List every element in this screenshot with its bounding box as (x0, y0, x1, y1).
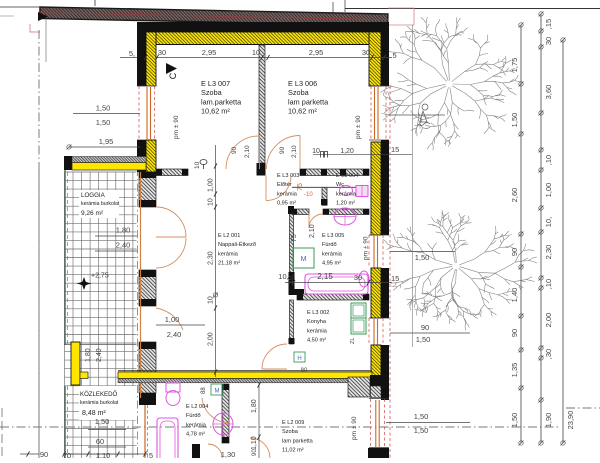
svg-text:11,02 m²: 11,02 m² (282, 448, 304, 454)
svg-text:kerámia burkolat: kerámia burkolat (80, 400, 119, 406)
svg-text:kerámia: kerámia (186, 422, 207, 428)
svg-text:1,50: 1,50 (414, 412, 429, 421)
svg-text:1,50: 1,50 (415, 253, 430, 262)
svg-text:75: 75 (291, 234, 298, 242)
svg-text:pm ± 90: pm ± 90 (351, 416, 358, 440)
svg-text:2,40: 2,40 (116, 241, 131, 250)
svg-text:ZL: ZL (350, 338, 356, 344)
svg-text:4,95 m²: 4,95 m² (322, 261, 341, 267)
svg-text:21,18 m²: 21,18 m² (218, 261, 240, 267)
svg-text:90: 90 (231, 146, 238, 154)
svg-text:10: 10 (252, 48, 260, 57)
svg-text:Konyha: Konyha (307, 319, 327, 325)
svg-text:+2,75: +2,75 (91, 273, 109, 280)
svg-text:M: M (215, 389, 220, 395)
svg-text:1,30: 1,30 (221, 450, 236, 458)
svg-text:1,50: 1,50 (510, 113, 519, 128)
svg-text:2,00: 2,00 (208, 332, 215, 346)
svg-text:1,20: 1,20 (340, 148, 354, 155)
svg-text:23,90: 23,90 (566, 411, 575, 430)
svg-text:,10: ,10 (544, 155, 553, 165)
svg-text:Wc: Wc (336, 182, 344, 188)
svg-text:1,50: 1,50 (96, 104, 111, 113)
svg-text:10,62 m²: 10,62 m² (201, 107, 230, 116)
svg-text:1,50: 1,50 (414, 426, 429, 435)
svg-text:Szoba: Szoba (288, 88, 310, 97)
svg-text:C: C (168, 72, 178, 79)
svg-text:70: 70 (63, 451, 71, 458)
svg-text:2,30: 2,30 (208, 251, 215, 265)
svg-text:Fürdő: Fürdő (186, 413, 201, 419)
svg-text:E L2 009: E L2 009 (282, 420, 304, 426)
svg-text:Szoba: Szoba (282, 429, 299, 435)
svg-text:9,26 m²: 9,26 m² (81, 210, 104, 217)
svg-text:1,35: 1,35 (510, 363, 519, 378)
svg-text:Nappali-Étkező: Nappali-Étkező (218, 241, 256, 248)
svg-text:10: 10 (194, 161, 201, 169)
svg-text:E L3 004: E L3 004 (336, 173, 358, 179)
svg-text:1,40: 1,40 (510, 288, 519, 303)
svg-text:pm ± 90: pm ± 90 (363, 236, 370, 260)
svg-text:LOGGIA: LOGGIA (81, 192, 106, 199)
svg-text:4,50 m²: 4,50 m² (307, 338, 326, 344)
svg-text:90: 90 (279, 146, 286, 154)
svg-text:E L3 002: E L3 002 (307, 310, 329, 316)
svg-text:2,10: 2,10 (309, 224, 316, 238)
svg-text:5,: 5, (129, 49, 135, 58)
svg-text:E L3 003: E L3 003 (277, 173, 299, 179)
svg-text:90: 90 (40, 450, 48, 458)
svg-text:kerámia: kerámia (277, 191, 298, 197)
svg-text:,30: ,30 (544, 349, 553, 359)
svg-text:2,60: 2,60 (510, 188, 519, 203)
svg-text:pm ± 90: pm ± 90 (173, 115, 180, 139)
svg-text:1,50: 1,50 (95, 417, 110, 426)
svg-text:80: 80 (301, 368, 308, 374)
svg-text:Előtér: Előtér (277, 182, 292, 188)
svg-text:E L3 007: E L3 007 (201, 79, 230, 88)
svg-text:lam.parketta: lam.parketta (201, 97, 242, 106)
svg-text:10: 10 (312, 148, 320, 155)
svg-text:10,: 10, (278, 272, 288, 281)
svg-text:5: 5 (149, 451, 153, 458)
svg-text:2,95: 2,95 (309, 48, 324, 57)
svg-text:1,50: 1,50 (416, 335, 431, 344)
svg-text:15: 15 (391, 274, 399, 283)
svg-text:1,00: 1,00 (165, 315, 180, 324)
svg-text:4,78 m²: 4,78 m² (186, 432, 205, 438)
svg-text:2,10: 2,10 (244, 145, 251, 158)
svg-text:1,10: 1,10 (96, 451, 111, 458)
svg-text:88: 88 (201, 387, 207, 394)
svg-text:60: 60 (96, 437, 104, 446)
svg-text:5: 5 (393, 51, 397, 60)
svg-text:2,15: 2,15 (317, 272, 333, 281)
svg-text:0,95 m²: 0,95 m² (277, 201, 296, 207)
svg-text:H: H (297, 356, 301, 362)
svg-text:10: 10 (208, 296, 215, 304)
svg-text:Fürdő: Fürdő (322, 242, 337, 248)
svg-text:KÖZLEKEDŐ: KÖZLEKEDŐ (80, 391, 118, 398)
svg-text:pm ± 90: pm ± 90 (355, 115, 362, 139)
svg-text:M: M (301, 256, 307, 263)
svg-text:1,75: 1,75 (510, 58, 519, 73)
svg-text:90: 90 (421, 323, 429, 332)
svg-text:1,90: 1,90 (544, 413, 553, 428)
svg-text:2,95: 2,95 (202, 48, 217, 57)
svg-text:1,10: 1,10 (251, 436, 258, 450)
svg-text:E L2 001: E L2 001 (218, 233, 240, 239)
svg-text:30: 30 (354, 273, 362, 282)
svg-text:Szoba: Szoba (201, 88, 223, 97)
svg-text:,15: ,15 (544, 19, 553, 29)
svg-text:2,40: 2,40 (96, 348, 103, 362)
svg-text:E L2 004: E L2 004 (186, 404, 208, 410)
svg-text:2,30: 2,30 (544, 245, 553, 260)
svg-text:10,: 10, (544, 217, 553, 227)
svg-text:3,60: 3,60 (544, 85, 553, 100)
svg-text:90: 90 (510, 329, 519, 337)
svg-text:1,95: 1,95 (99, 137, 114, 146)
svg-text:lam parketta: lam parketta (288, 97, 329, 106)
svg-text:E L3 006: E L3 006 (288, 79, 317, 88)
svg-text:2,10: 2,10 (291, 145, 298, 158)
svg-text:E L3 005: E L3 005 (322, 233, 344, 239)
svg-text:75: 75 (297, 183, 304, 191)
svg-text:kerámia: kerámia (218, 251, 239, 257)
svg-text:-10: -10 (304, 192, 313, 198)
svg-text:8,48 m²: 8,48 m² (82, 410, 106, 417)
svg-text:1,80: 1,80 (116, 226, 131, 235)
svg-text:lam parketta: lam parketta (282, 438, 314, 444)
svg-text:15: 15 (391, 145, 399, 154)
svg-text:10,62 m²: 10,62 m² (288, 107, 317, 116)
svg-text:30: 30 (362, 48, 370, 57)
svg-text:1,50: 1,50 (510, 413, 519, 428)
svg-text:30: 30 (544, 37, 553, 45)
svg-text:kerámia burkolat: kerámia burkolat (81, 201, 120, 207)
svg-text:30: 30 (158, 48, 166, 57)
svg-text:10: 10 (208, 198, 215, 206)
svg-text:2,00: 2,00 (544, 313, 553, 328)
svg-text:kerámia: kerámia (307, 328, 328, 334)
svg-text:1,50: 1,50 (96, 118, 111, 127)
svg-text:1,00: 1,00 (544, 183, 553, 198)
svg-text:1,80: 1,80 (251, 399, 258, 413)
svg-text:kerámia: kerámia (336, 191, 357, 197)
svg-text:90: 90 (510, 248, 519, 256)
svg-text:2,40: 2,40 (167, 330, 182, 339)
svg-text:1,20 m²: 1,20 m² (336, 201, 355, 207)
svg-text:1,00: 1,00 (208, 178, 215, 192)
svg-text:,10: ,10 (544, 279, 553, 289)
svg-text:1,80: 1,80 (85, 348, 92, 362)
svg-text:kerámia: kerámia (322, 251, 343, 257)
